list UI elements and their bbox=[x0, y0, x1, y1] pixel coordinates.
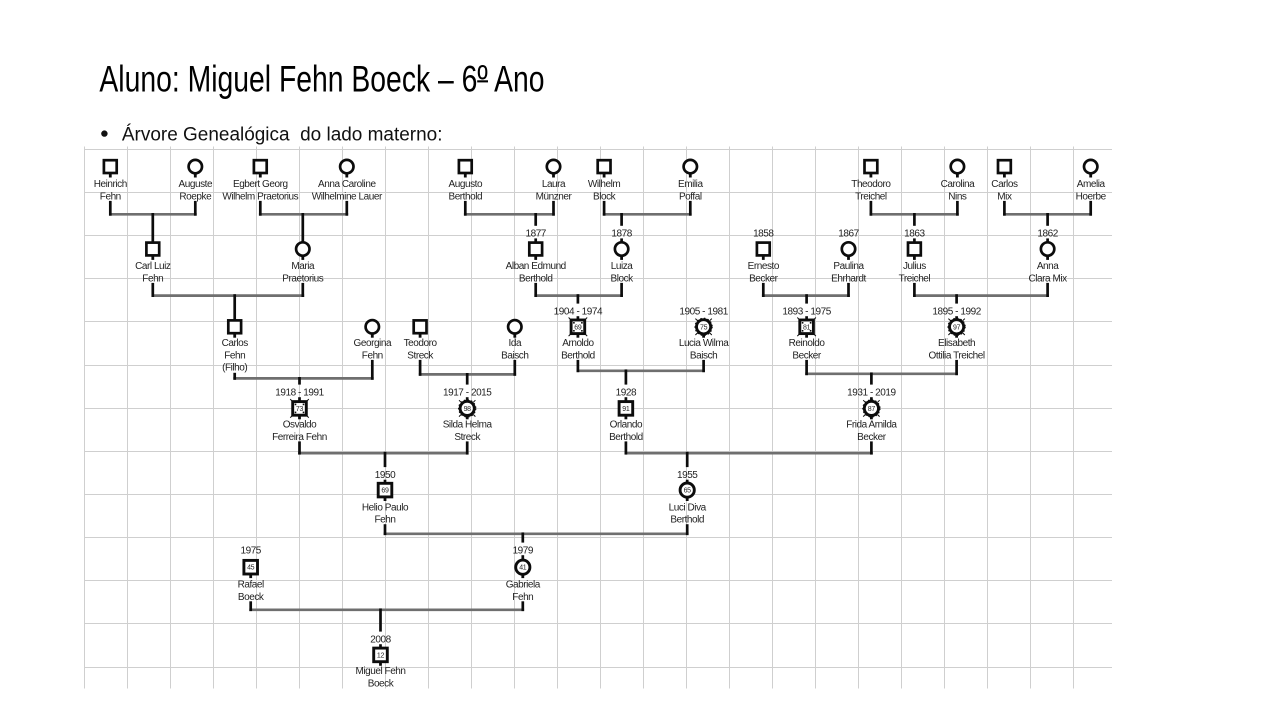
svg-text:Georgina: Georgina bbox=[354, 338, 392, 349]
svg-text:Wilhelmine Lauer: Wilhelmine Lauer bbox=[312, 191, 383, 202]
svg-text:1863: 1863 bbox=[904, 229, 925, 240]
svg-text:Mix: Mix bbox=[997, 191, 1012, 202]
svg-text:87: 87 bbox=[868, 406, 876, 413]
svg-text:Poffal: Poffal bbox=[679, 191, 702, 202]
svg-text:Boeck: Boeck bbox=[238, 592, 265, 603]
svg-text:1877: 1877 bbox=[525, 229, 546, 240]
svg-text:Arnoldo: Arnoldo bbox=[562, 338, 594, 349]
svg-text:Teodoro: Teodoro bbox=[404, 338, 438, 349]
svg-text:Amelia: Amelia bbox=[1077, 179, 1106, 190]
svg-text:Block: Block bbox=[610, 273, 634, 284]
svg-text:Auguste: Auguste bbox=[179, 179, 213, 190]
svg-text:Berthold: Berthold bbox=[561, 351, 595, 362]
svg-text:Berthold: Berthold bbox=[609, 432, 643, 443]
svg-text:Luiza: Luiza bbox=[611, 261, 634, 272]
svg-text:1979: 1979 bbox=[513, 546, 534, 557]
svg-text:1893 - 1975: 1893 - 1975 bbox=[782, 307, 831, 318]
svg-text:Wilhelm Praetorius: Wilhelm Praetorius bbox=[222, 191, 298, 202]
svg-text:Carl Luiz: Carl Luiz bbox=[135, 261, 171, 272]
svg-text:Luci Diva: Luci Diva bbox=[669, 502, 707, 513]
svg-text:65: 65 bbox=[684, 488, 692, 495]
svg-text:Boeck: Boeck bbox=[368, 678, 395, 689]
svg-text:Baisch: Baisch bbox=[501, 351, 528, 362]
svg-text:Becker: Becker bbox=[749, 273, 779, 284]
svg-text:12: 12 bbox=[377, 652, 385, 659]
svg-text:Osvaldo: Osvaldo bbox=[283, 419, 317, 430]
svg-text:Ehrhardt: Ehrhardt bbox=[831, 273, 866, 284]
svg-text:Clara Mix: Clara Mix bbox=[1029, 273, 1068, 284]
svg-text:Fehn: Fehn bbox=[512, 592, 533, 603]
svg-text:Heinrich: Heinrich bbox=[94, 179, 127, 190]
svg-text:Anna: Anna bbox=[1037, 261, 1059, 272]
svg-text:1858: 1858 bbox=[753, 229, 774, 240]
svg-text:Hoerbe: Hoerbe bbox=[1076, 191, 1107, 202]
svg-text:1904 - 1974: 1904 - 1974 bbox=[554, 307, 603, 318]
svg-text:Theodoro: Theodoro bbox=[851, 179, 891, 190]
svg-text:Frida Arnilda: Frida Arnilda bbox=[846, 419, 897, 430]
svg-text:Streck: Streck bbox=[454, 432, 481, 443]
svg-text:1975: 1975 bbox=[240, 546, 261, 557]
svg-text:Emilia: Emilia bbox=[678, 179, 703, 190]
svg-text:73: 73 bbox=[296, 406, 304, 413]
svg-text:Ida: Ida bbox=[509, 338, 522, 349]
svg-text:69: 69 bbox=[381, 488, 389, 495]
svg-text:Treichel: Treichel bbox=[899, 273, 931, 284]
svg-text:Augusto: Augusto bbox=[449, 179, 483, 190]
svg-text:Fehn: Fehn bbox=[142, 273, 163, 284]
svg-text:Praetorius: Praetorius bbox=[282, 273, 324, 284]
svg-text:1917 - 2015: 1917 - 2015 bbox=[443, 388, 492, 399]
svg-text:1950: 1950 bbox=[375, 470, 396, 481]
svg-text:Carlos: Carlos bbox=[222, 338, 249, 349]
svg-text:Berthold: Berthold bbox=[448, 191, 482, 202]
svg-text:Miguel Fehn: Miguel Fehn bbox=[355, 666, 405, 677]
svg-text:Paulina: Paulina bbox=[833, 261, 864, 272]
svg-text:Rafael: Rafael bbox=[238, 580, 264, 591]
svg-text:Ottilia Treichel: Ottilia Treichel bbox=[929, 351, 985, 362]
svg-text:45: 45 bbox=[247, 565, 255, 572]
svg-text:1918 - 1991: 1918 - 1991 bbox=[275, 388, 324, 399]
svg-text:Berthold: Berthold bbox=[670, 515, 704, 526]
svg-text:Baisch: Baisch bbox=[690, 351, 717, 362]
svg-text:Streck: Streck bbox=[407, 351, 434, 362]
svg-text:1928: 1928 bbox=[616, 388, 637, 399]
svg-text:Maria: Maria bbox=[291, 261, 315, 272]
svg-text:1867: 1867 bbox=[838, 229, 859, 240]
svg-text:Nins: Nins bbox=[948, 191, 967, 202]
svg-text:Aluno: Miguel Fehn Boeck – 6º: Aluno: Miguel Fehn Boeck – 6º Ano bbox=[99, 57, 544, 99]
svg-text:1862: 1862 bbox=[1037, 229, 1058, 240]
svg-text:1931 - 2019: 1931 - 2019 bbox=[847, 388, 896, 399]
svg-text:Laura: Laura bbox=[542, 179, 566, 190]
svg-text:Carolina: Carolina bbox=[941, 179, 976, 190]
svg-text:Berthold: Berthold bbox=[519, 273, 553, 284]
svg-text:Fehn: Fehn bbox=[375, 515, 396, 526]
svg-text:Wilhelm: Wilhelm bbox=[588, 179, 621, 190]
svg-text:Münzner: Münzner bbox=[536, 191, 573, 202]
svg-text:Árvore Genealógica do lado ma: Árvore Genealógica do lado materno: bbox=[122, 123, 443, 146]
svg-text:Block: Block bbox=[593, 191, 617, 202]
svg-text:Elisabeth: Elisabeth bbox=[938, 338, 975, 349]
svg-text:1895 - 1992: 1895 - 1992 bbox=[932, 307, 981, 318]
svg-text:Treichel: Treichel bbox=[855, 191, 887, 202]
svg-text:Julius: Julius bbox=[903, 261, 926, 272]
svg-text:Fehn: Fehn bbox=[362, 351, 383, 362]
svg-text:Becker: Becker bbox=[792, 351, 822, 362]
svg-text:Reinoldo: Reinoldo bbox=[789, 338, 826, 349]
svg-text:Orlando: Orlando bbox=[610, 419, 643, 430]
svg-text:Ferreira Fehn: Ferreira Fehn bbox=[272, 432, 327, 443]
svg-text:Alban Edmund: Alban Edmund bbox=[506, 261, 566, 272]
svg-text:81: 81 bbox=[803, 324, 811, 331]
svg-text:1905 - 1981: 1905 - 1981 bbox=[679, 307, 728, 318]
svg-text:1955: 1955 bbox=[677, 470, 698, 481]
svg-text:Lucia Wilma: Lucia Wilma bbox=[679, 338, 729, 349]
svg-text:Silda Helma: Silda Helma bbox=[443, 419, 493, 430]
svg-text:97: 97 bbox=[953, 324, 961, 331]
svg-text:Gabriela: Gabriela bbox=[506, 580, 541, 591]
svg-text:(Filho): (Filho) bbox=[222, 363, 247, 374]
svg-text:2008: 2008 bbox=[370, 635, 391, 646]
svg-text:Carlos: Carlos bbox=[991, 179, 1018, 190]
svg-text:Roepke: Roepke bbox=[179, 191, 212, 202]
svg-text:Ernesto: Ernesto bbox=[748, 261, 780, 272]
svg-text:98: 98 bbox=[464, 406, 472, 413]
svg-text:Fehn: Fehn bbox=[224, 351, 245, 362]
svg-text:91: 91 bbox=[622, 406, 630, 413]
svg-text:Fehn: Fehn bbox=[100, 191, 121, 202]
svg-text:Anna Caroline: Anna Caroline bbox=[318, 179, 376, 190]
svg-text:75: 75 bbox=[700, 324, 708, 331]
svg-text:Becker: Becker bbox=[857, 432, 887, 443]
svg-text:Egbert Georg: Egbert Georg bbox=[233, 179, 288, 190]
svg-text:41: 41 bbox=[519, 565, 527, 572]
svg-text:1878: 1878 bbox=[611, 229, 632, 240]
svg-text:Helio Paulo: Helio Paulo bbox=[362, 502, 409, 513]
svg-text:69: 69 bbox=[574, 324, 582, 331]
